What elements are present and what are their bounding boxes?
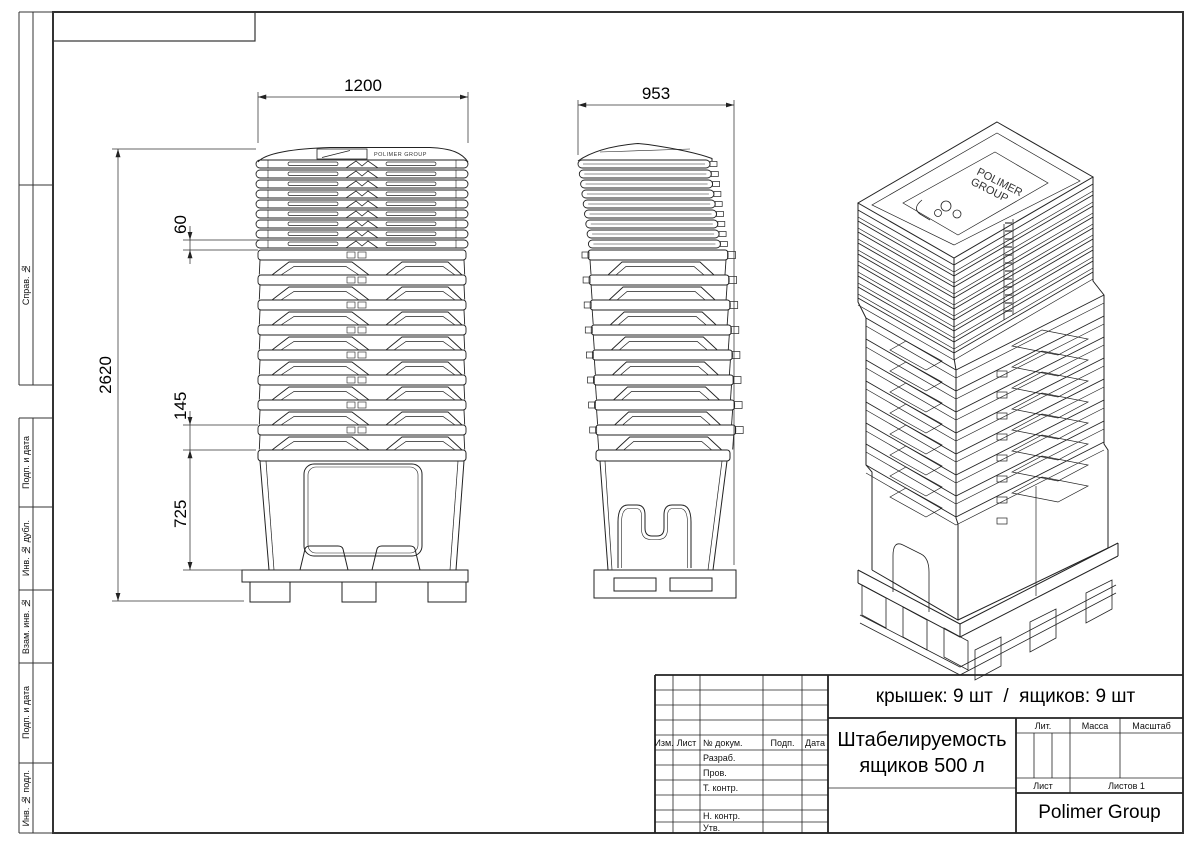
- document-title: Штабелируемость ящиков 500 л: [828, 718, 1016, 788]
- header-lit: Лит.: [1016, 718, 1070, 733]
- stack-counts: крышек: 9 шт / ящиков: 9 шт: [828, 675, 1183, 718]
- dim-total-height: 2620: [96, 356, 115, 394]
- row-tkontr: Т. контр.: [700, 780, 763, 795]
- document-title-line2: ящиков 500 л: [859, 753, 984, 779]
- row-prov: Пров.: [700, 765, 763, 780]
- document-title-line1: Штабелируемость: [837, 727, 1006, 753]
- row-utv: Утв.: [700, 822, 763, 833]
- dim-box-pitch: 145: [171, 392, 190, 420]
- side-label-podp-2: Подп. и дата: [19, 663, 33, 763]
- dim-bottom-box: 725: [171, 500, 190, 528]
- header-listov: Листов 1: [1070, 778, 1183, 793]
- dim-front-width: 1200: [344, 76, 382, 95]
- col-header-doc: № докум.: [700, 735, 763, 750]
- side-label-vzam: Взам. инв. №: [19, 590, 33, 663]
- row-nkontr: Н. контр.: [700, 810, 763, 822]
- side-label-inv-podl: Инв. № подл.: [19, 763, 33, 833]
- header-massa: Масса: [1070, 718, 1120, 733]
- row-razrab: Разраб.: [700, 750, 763, 765]
- col-header-data: Дата: [802, 735, 828, 750]
- side-label-podp-1: Подп. и дата: [19, 418, 33, 507]
- col-header-podp: Подп.: [763, 735, 802, 750]
- company-name: Polimer Group: [1016, 793, 1183, 833]
- front-view: [242, 148, 468, 603]
- dim-side-width: 953: [642, 84, 670, 103]
- side-label-inv-dubl: Инв. № дубл.: [19, 507, 33, 590]
- front-lid-logo-text: POLIMER GROUP: [374, 152, 427, 158]
- header-list2: Лист: [1016, 778, 1070, 793]
- side-label-sprav: Справ. №: [19, 185, 33, 385]
- col-header-izm: Изм.: [655, 735, 673, 750]
- col-header-list: Лист: [673, 735, 700, 750]
- side-view: [578, 144, 743, 599]
- iso-view: [858, 122, 1118, 680]
- header-masshtab: Масштаб: [1120, 718, 1183, 733]
- dim-lid-pitch: 60: [171, 215, 190, 234]
- drawing-sheet: 1200 953 2620 60 145 725 POLIMER GROUP P…: [0, 0, 1200, 845]
